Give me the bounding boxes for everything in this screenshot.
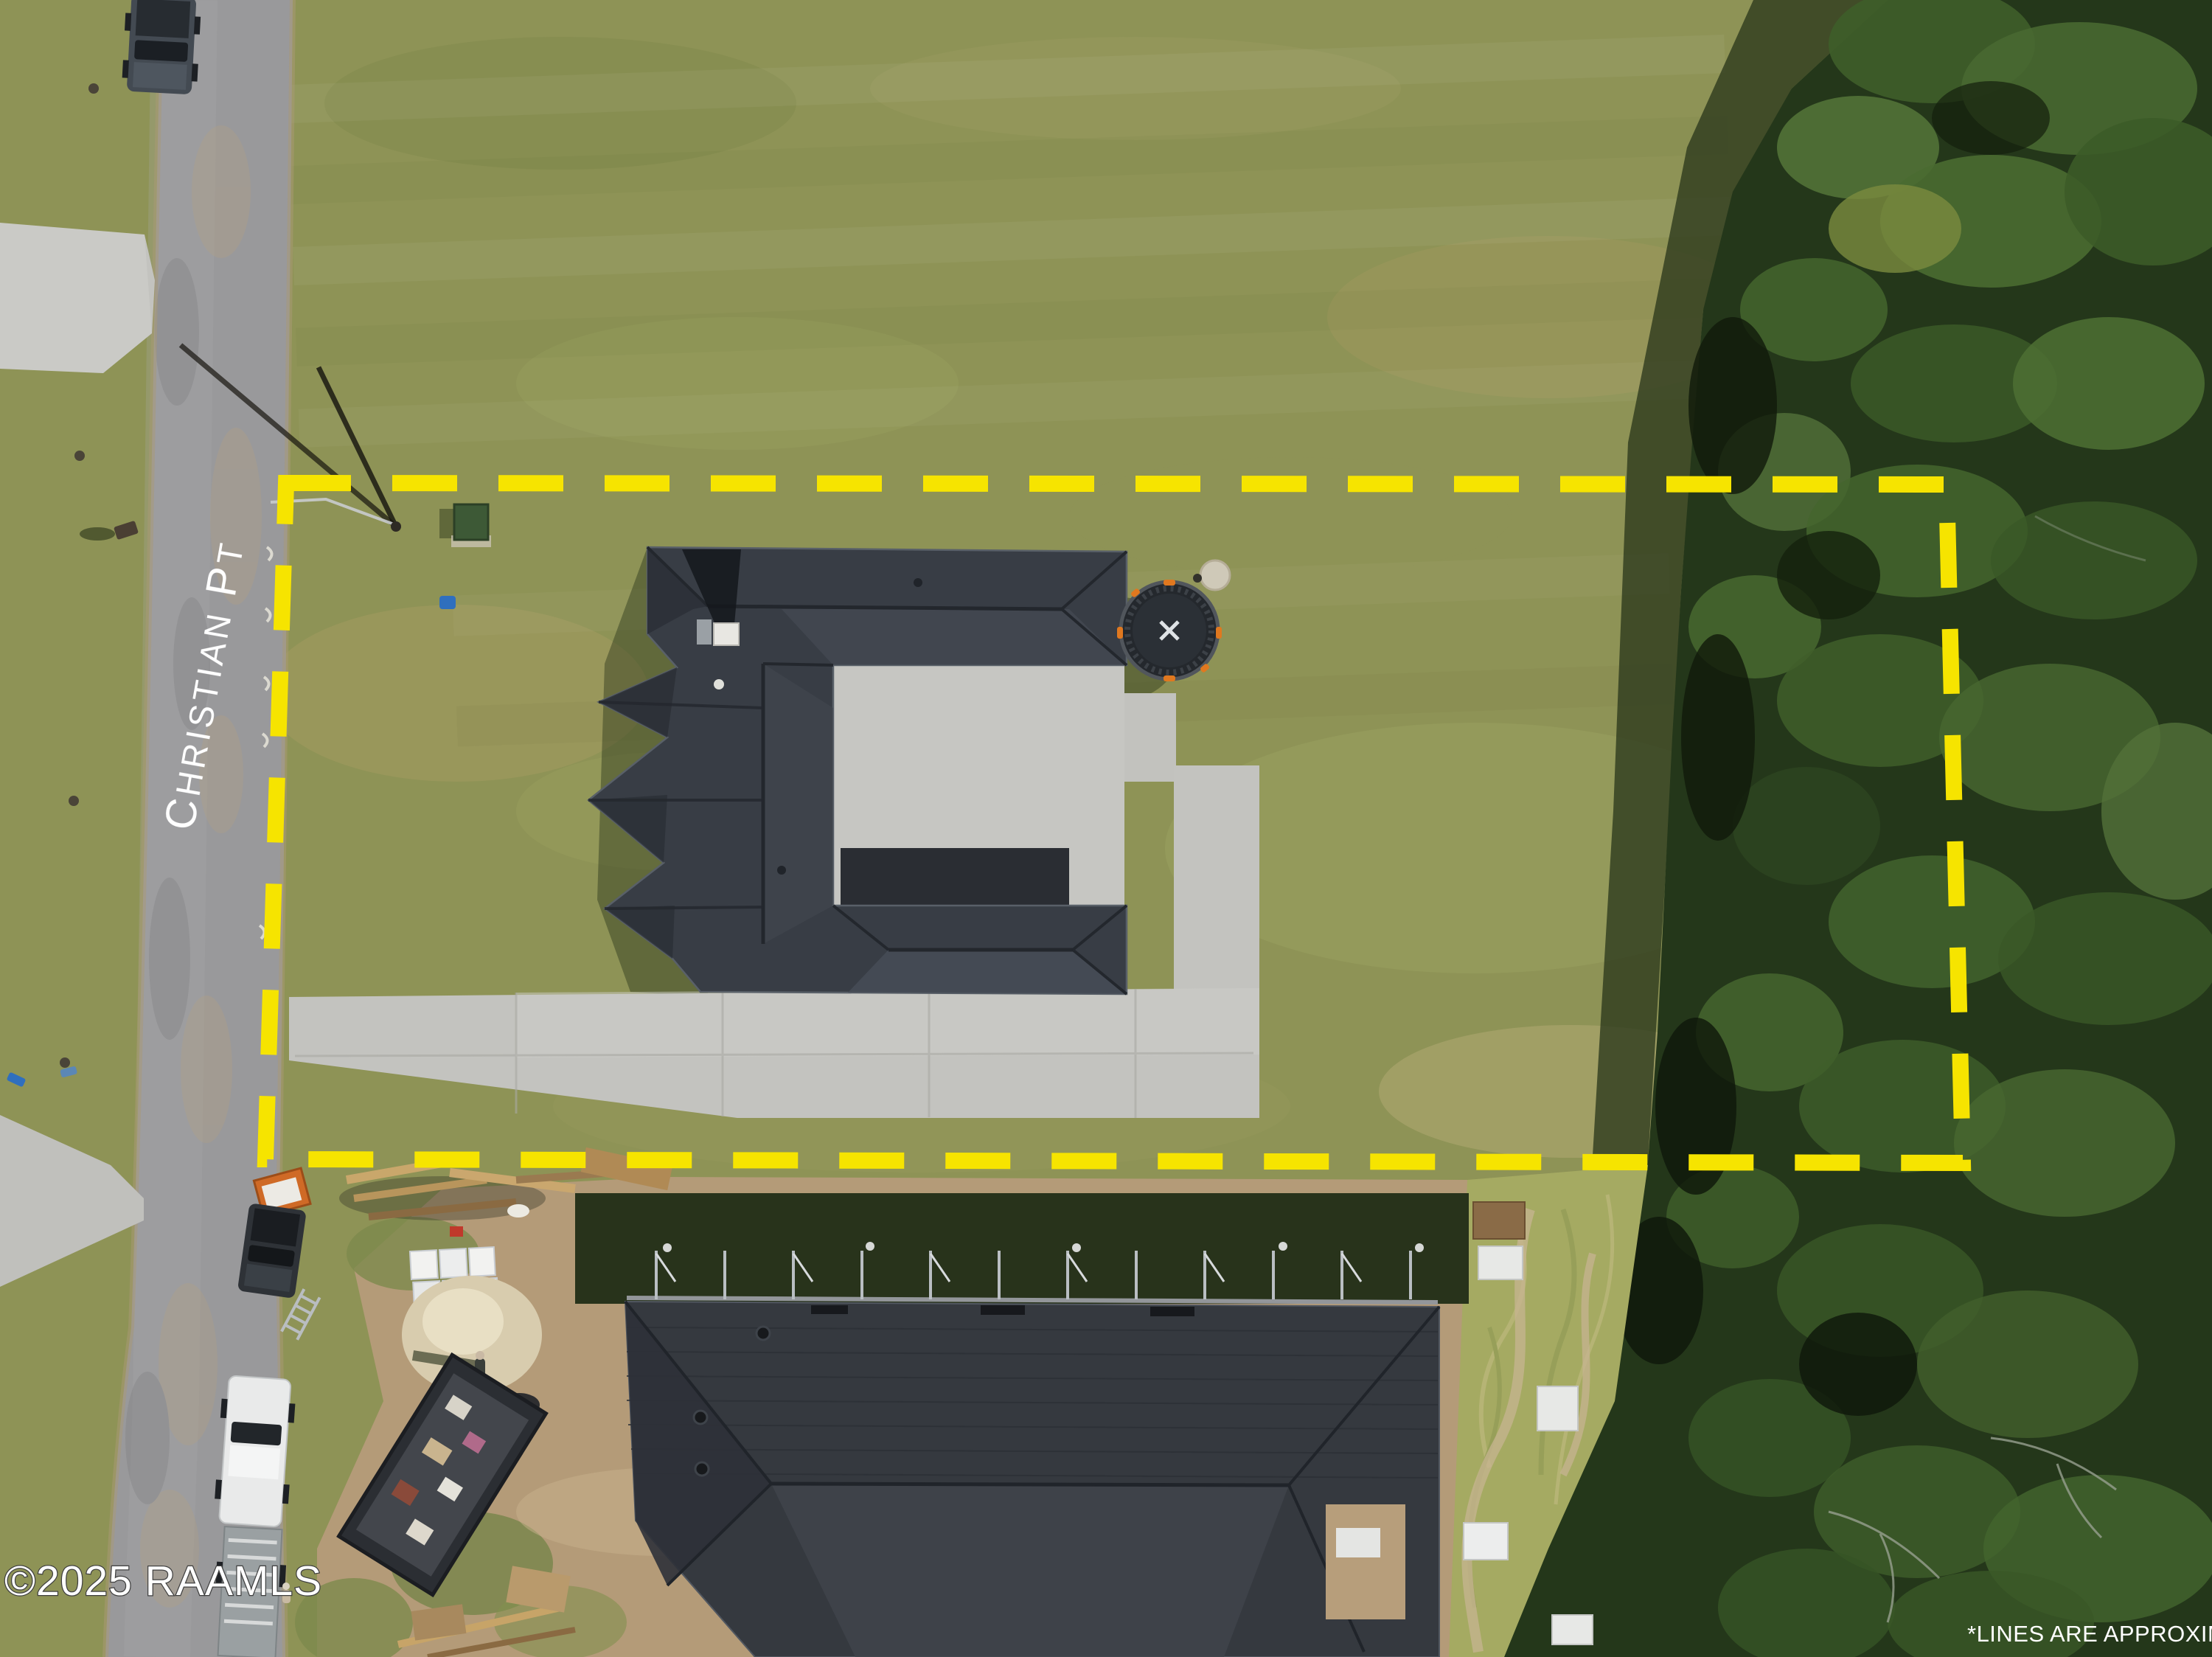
yard-object bbox=[1193, 574, 1202, 583]
chimney bbox=[714, 623, 739, 645]
roof-facet bbox=[771, 1484, 1289, 1657]
chimney-cap bbox=[697, 619, 712, 645]
construction-site bbox=[254, 1147, 1648, 1657]
mailbox-shadow bbox=[80, 527, 115, 541]
aerial-photo: CHRISTIANPT ©2025 RAAMLS *LINES ARE APPR… bbox=[0, 0, 2212, 1657]
parked-suv-top bbox=[122, 0, 202, 95]
blue-toy bbox=[439, 596, 456, 609]
utility-box bbox=[454, 504, 488, 540]
roof-vent bbox=[714, 679, 724, 689]
aerial-photo-canvas: CHRISTIANPT ©2025 RAAMLS *LINES ARE APPR… bbox=[0, 0, 2212, 1657]
dark-pickup bbox=[237, 1203, 307, 1299]
worker-head bbox=[476, 1351, 484, 1360]
utility-marker bbox=[88, 83, 99, 94]
stepping-stone bbox=[1200, 560, 1230, 590]
white-bag bbox=[507, 1204, 529, 1217]
utility-marker bbox=[69, 796, 79, 806]
roof-vent bbox=[914, 578, 922, 587]
garage-opening-shadow bbox=[841, 848, 1069, 911]
disclaimer-label: *LINES ARE APPROXIMATE bbox=[1967, 1621, 2212, 1647]
utility-pole bbox=[391, 521, 401, 532]
material-stack bbox=[1336, 1528, 1380, 1557]
construction-house-roof bbox=[625, 1302, 1439, 1657]
side-drive bbox=[1174, 765, 1259, 997]
roof-notch-dirt bbox=[1326, 1504, 1405, 1619]
utility-box-shadow bbox=[439, 509, 454, 538]
red-item bbox=[450, 1226, 463, 1237]
patio-walk bbox=[1124, 693, 1176, 782]
utility-marker bbox=[60, 1057, 70, 1068]
shaded-grass bbox=[575, 1193, 1469, 1304]
roof-vent bbox=[777, 866, 786, 875]
copyright-watermark: ©2025 RAAMLS bbox=[4, 1557, 322, 1605]
utility-marker bbox=[74, 451, 85, 461]
roof-facet bbox=[763, 664, 833, 944]
